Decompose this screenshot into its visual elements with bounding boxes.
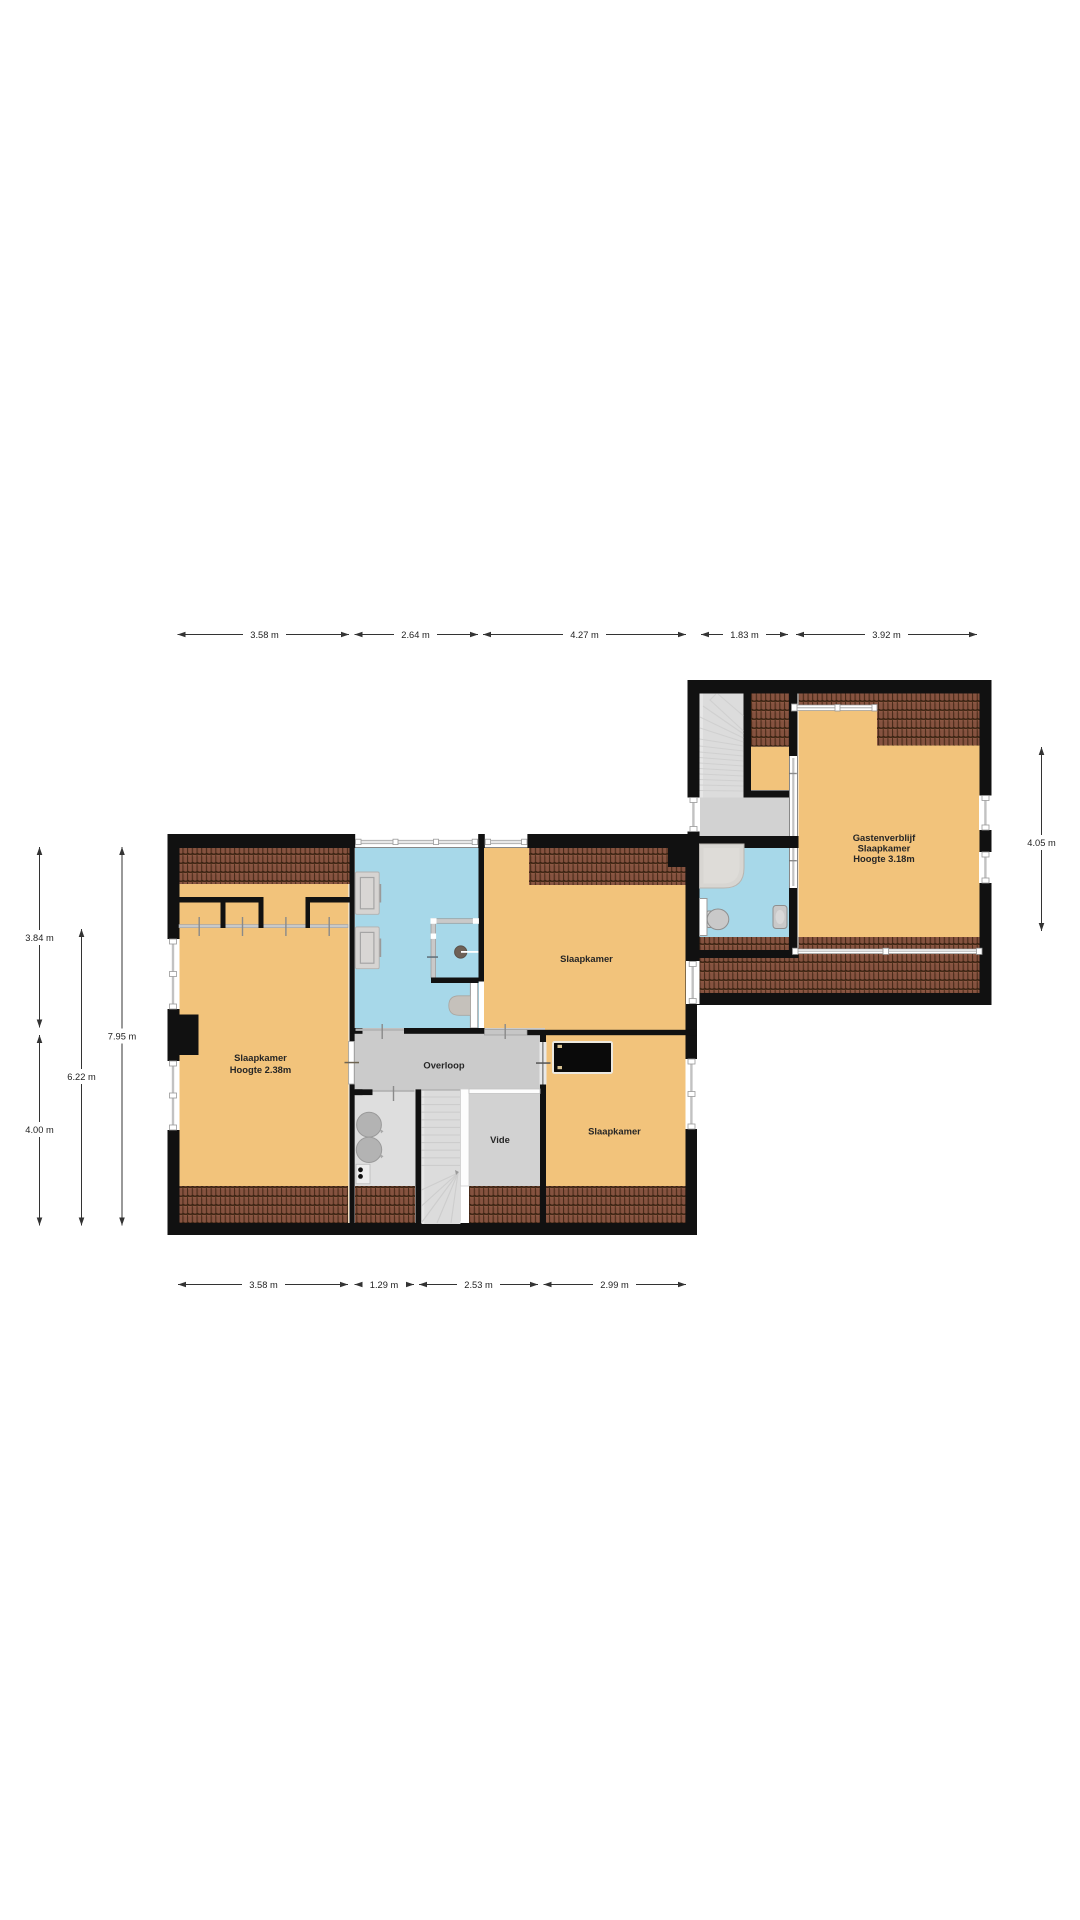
svg-text:4.27 m: 4.27 m — [570, 630, 599, 640]
svg-text:7.95 m: 7.95 m — [108, 1032, 137, 1042]
svg-text:Slaapkamer: Slaapkamer — [560, 953, 613, 964]
svg-text:3.84 m: 3.84 m — [25, 933, 54, 943]
svg-text:1.29 m: 1.29 m — [370, 1280, 399, 1290]
svg-text:Vide: Vide — [490, 1134, 510, 1145]
svg-text:3.58 m: 3.58 m — [250, 630, 279, 640]
svg-text:2.53 m: 2.53 m — [464, 1280, 493, 1290]
svg-text:3.92 m: 3.92 m — [872, 630, 901, 640]
svg-text:Slaapkamer: Slaapkamer — [588, 1126, 641, 1137]
svg-text:Slaapkamer: Slaapkamer — [234, 1052, 287, 1063]
svg-text:4.05 m: 4.05 m — [1027, 838, 1056, 848]
svg-text:2.99 m: 2.99 m — [600, 1280, 629, 1290]
svg-text:6.22 m: 6.22 m — [67, 1072, 96, 1082]
svg-text:2.64 m: 2.64 m — [401, 630, 430, 640]
svg-text:1.83 m: 1.83 m — [730, 630, 759, 640]
svg-text:Gastenverblijf: Gastenverblijf — [853, 832, 916, 843]
svg-text:Slaapkamer: Slaapkamer — [858, 843, 911, 854]
svg-text:4.00 m: 4.00 m — [25, 1125, 54, 1135]
svg-text:Hoogte 2.38m: Hoogte 2.38m — [230, 1064, 291, 1075]
svg-text:3.58 m: 3.58 m — [249, 1280, 278, 1290]
svg-text:Hoogte 3.18m: Hoogte 3.18m — [853, 853, 914, 864]
svg-text:Overloop: Overloop — [423, 1060, 464, 1071]
